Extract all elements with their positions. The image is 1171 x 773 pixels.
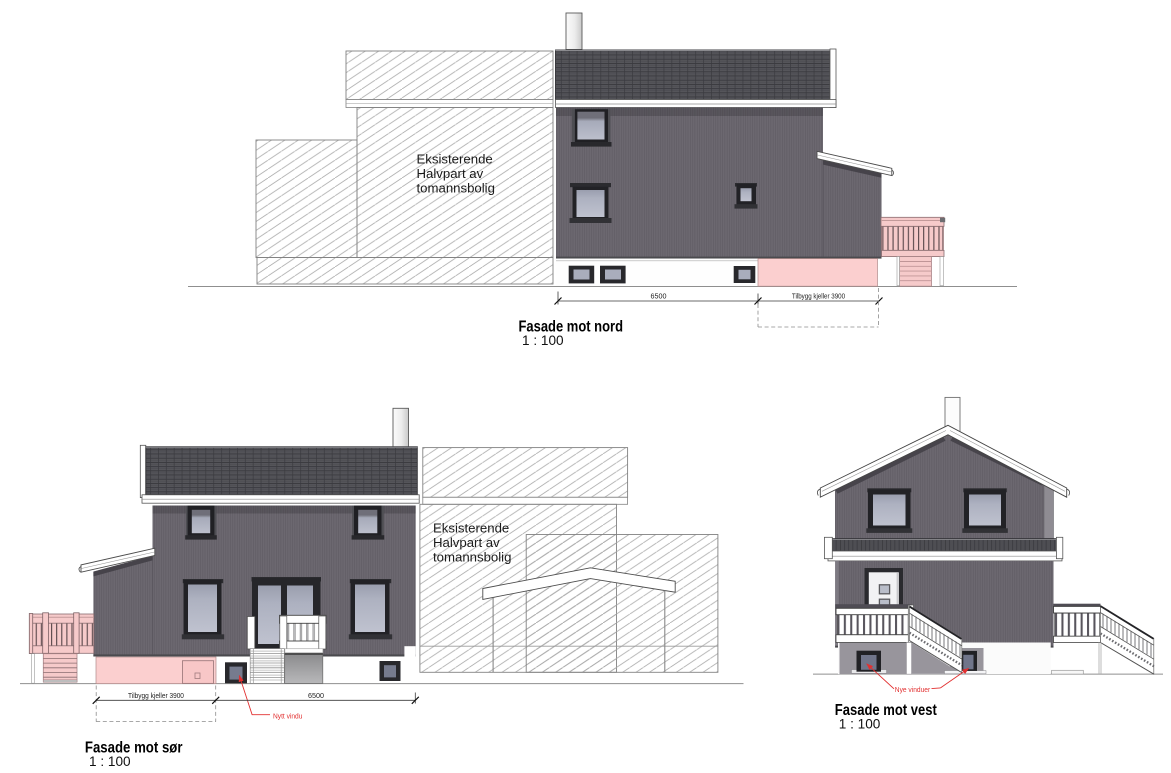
svg-text:Eksisterende: Eksisterende bbox=[417, 152, 493, 167]
svg-text:tomannsbolig: tomannsbolig bbox=[433, 550, 511, 565]
svg-text:Nye vinduer: Nye vinduer bbox=[895, 685, 931, 694]
svg-text:1 : 100: 1 : 100 bbox=[839, 716, 881, 731]
svg-text:1 : 100: 1 : 100 bbox=[89, 754, 131, 769]
svg-text:1 : 100: 1 : 100 bbox=[522, 333, 564, 348]
svg-text:Halvpart av: Halvpart av bbox=[433, 535, 500, 550]
svg-text:Nytt vindu: Nytt vindu bbox=[273, 711, 302, 720]
svg-text:6500: 6500 bbox=[308, 691, 324, 700]
svg-text:Eksisterende: Eksisterende bbox=[433, 521, 509, 536]
svg-text:tomannsbolig: tomannsbolig bbox=[417, 181, 495, 196]
svg-text:Tilbygg kjeller 3900: Tilbygg kjeller 3900 bbox=[128, 691, 184, 700]
svg-text:6500: 6500 bbox=[651, 292, 667, 301]
svg-text:Tilbygg kjeller 3900: Tilbygg kjeller 3900 bbox=[792, 292, 845, 301]
svg-text:Halvpart av: Halvpart av bbox=[417, 166, 484, 181]
